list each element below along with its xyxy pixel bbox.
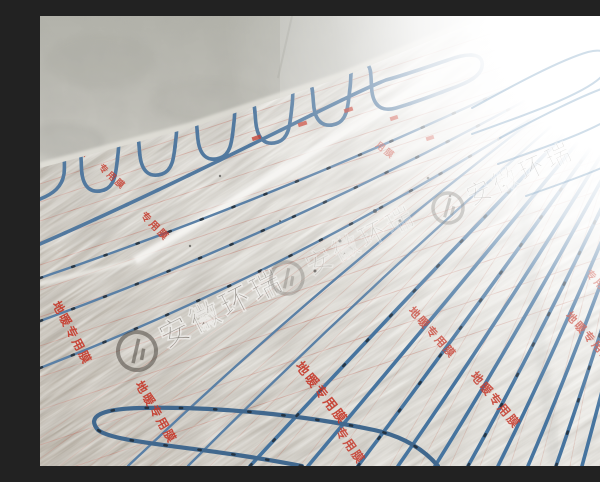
photo-canvas: 用膜 专用膜 专用膜 地暖专用膜 地暖专用膜 地暖专用膜 专用膜 地暖专用膜 地… (40, 16, 600, 466)
photo-underfloor-heating: 用膜 专用膜 专用膜 地暖专用膜 地暖专用膜 地暖专用膜 专用膜 地暖专用膜 地… (40, 16, 600, 466)
